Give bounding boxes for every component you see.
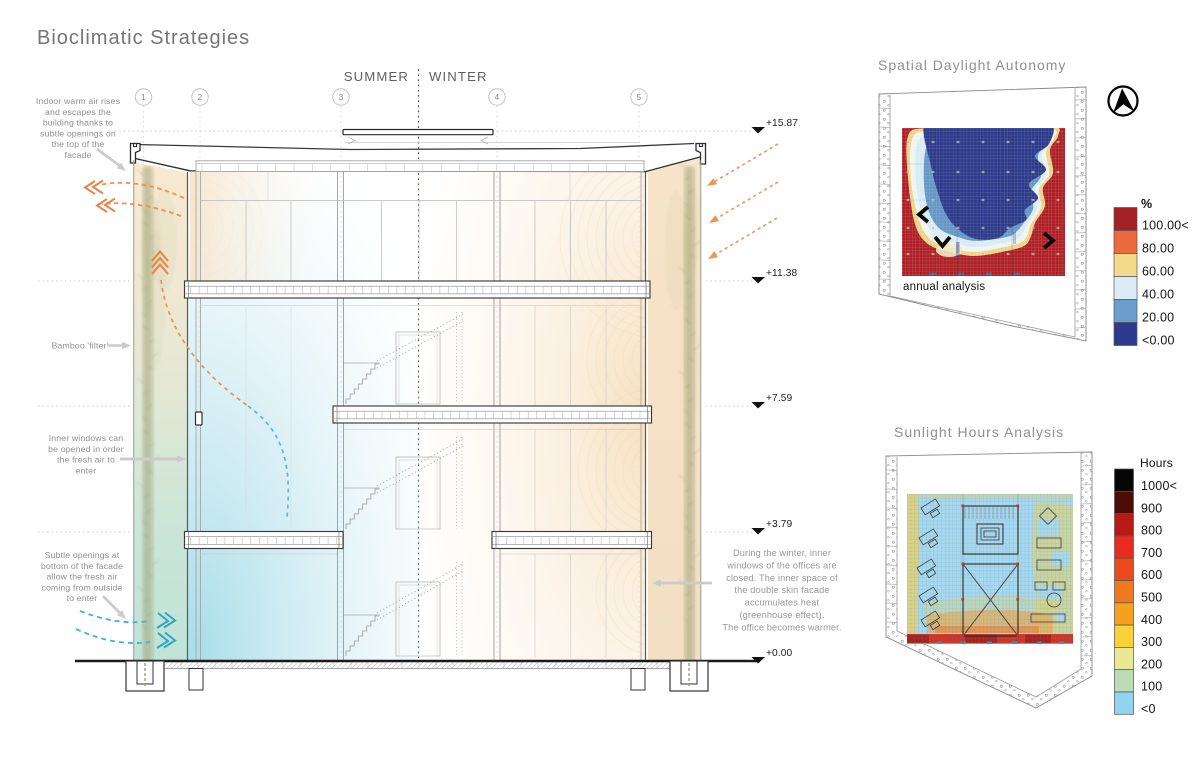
svg-text:%: % bbox=[1141, 197, 1152, 211]
svg-text:the top of the: the top of the bbox=[52, 139, 105, 149]
svg-text:20.00: 20.00 bbox=[1142, 311, 1174, 325]
svg-text:coming from outside: coming from outside bbox=[41, 582, 122, 592]
svg-text:1000<: 1000< bbox=[1141, 479, 1177, 493]
svg-text:<0: <0 bbox=[1141, 702, 1156, 716]
svg-text:+11.38: +11.38 bbox=[766, 268, 798, 279]
svg-text:(greenhouse effect).: (greenhouse effect). bbox=[739, 610, 824, 620]
svg-text:building thanks to: building thanks to bbox=[43, 118, 113, 128]
svg-text:During the winter, inner: During the winter, inner bbox=[733, 548, 831, 558]
svg-text:60.00: 60.00 bbox=[1142, 265, 1174, 279]
svg-text:100.00<: 100.00< bbox=[1142, 219, 1189, 233]
svg-text:Spatial Daylight Autonomy: Spatial Daylight Autonomy bbox=[878, 57, 1066, 73]
svg-text:Subtle openings at: Subtle openings at bbox=[45, 550, 120, 560]
svg-text:Indoor warm air rises: Indoor warm air rises bbox=[36, 96, 121, 106]
svg-text:the fresh air to: the fresh air to bbox=[57, 455, 115, 465]
svg-text:windows of the offices are: windows of the offices are bbox=[726, 560, 836, 570]
svg-text:2: 2 bbox=[198, 92, 203, 102]
svg-text:300: 300 bbox=[1141, 635, 1162, 649]
svg-text:to enter: to enter bbox=[67, 593, 98, 603]
svg-text:1: 1 bbox=[141, 92, 146, 102]
svg-text:the double skin facade: the double skin facade bbox=[734, 585, 829, 595]
svg-text:Inner windows can: Inner windows can bbox=[49, 433, 124, 443]
svg-text:Sunlight Hours Analysis: Sunlight Hours Analysis bbox=[894, 424, 1064, 440]
svg-text:accumulates heat: accumulates heat bbox=[745, 598, 820, 608]
svg-text:40.00: 40.00 bbox=[1142, 288, 1174, 302]
svg-text:Bamboo 'filter': Bamboo 'filter' bbox=[52, 341, 109, 351]
svg-text:closed. The inner space of: closed. The inner space of bbox=[726, 573, 838, 583]
svg-text:facade: facade bbox=[65, 150, 92, 160]
svg-text:Hours: Hours bbox=[1140, 456, 1173, 470]
svg-text:The office becomes warmer.: The office becomes warmer. bbox=[722, 622, 841, 632]
svg-text:annual analysis: annual analysis bbox=[903, 281, 985, 293]
svg-text:+15.87: +15.87 bbox=[766, 118, 798, 129]
svg-text:be opened in order: be opened in order bbox=[48, 444, 124, 454]
svg-text:3: 3 bbox=[339, 92, 344, 102]
svg-text:and escapes the: and escapes the bbox=[45, 107, 111, 117]
svg-text:+7.59: +7.59 bbox=[766, 393, 793, 404]
svg-text:100: 100 bbox=[1141, 680, 1162, 694]
svg-text:700: 700 bbox=[1141, 546, 1162, 560]
svg-text:Bioclimatic Strategies: Bioclimatic Strategies bbox=[37, 27, 250, 49]
svg-text:WINTER: WINTER bbox=[429, 69, 488, 84]
svg-text:5: 5 bbox=[637, 92, 642, 102]
svg-text:subtle openings on: subtle openings on bbox=[40, 128, 116, 138]
svg-text:bottom of the facade: bottom of the facade bbox=[41, 561, 123, 571]
svg-text:<0.00: <0.00 bbox=[1142, 334, 1175, 348]
svg-text:SUMMER: SUMMER bbox=[344, 69, 409, 84]
svg-text:enter: enter bbox=[76, 465, 97, 475]
svg-text:80.00: 80.00 bbox=[1142, 242, 1174, 256]
svg-text:allow the fresh air: allow the fresh air bbox=[47, 572, 118, 582]
svg-text:500: 500 bbox=[1141, 591, 1162, 605]
svg-text:400: 400 bbox=[1141, 613, 1162, 627]
svg-text:4: 4 bbox=[495, 92, 500, 102]
svg-text:+0.00: +0.00 bbox=[766, 648, 793, 659]
svg-text:600: 600 bbox=[1141, 568, 1162, 582]
svg-text:800: 800 bbox=[1141, 524, 1162, 538]
svg-text:+3.79: +3.79 bbox=[766, 519, 793, 530]
svg-text:900: 900 bbox=[1141, 501, 1162, 515]
svg-text:200: 200 bbox=[1141, 657, 1162, 671]
